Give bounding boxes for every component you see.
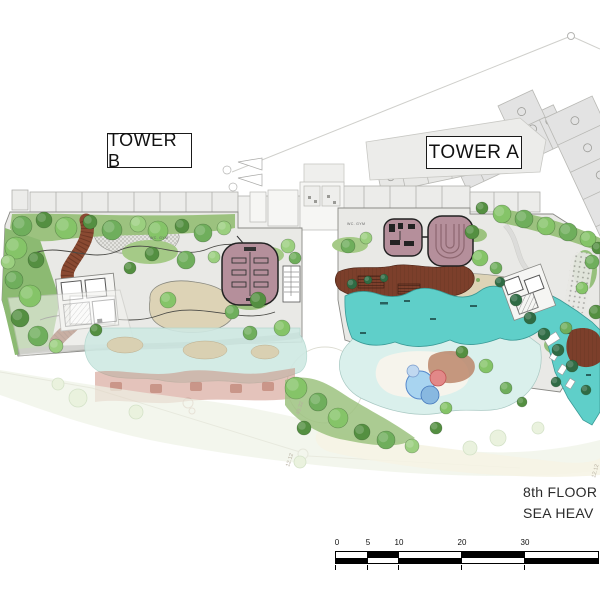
scale-label-10: 10 <box>395 538 404 547</box>
stair-core-tower-b <box>283 266 300 302</box>
scale-label-30: 30 <box>521 538 530 547</box>
plan-title-line2: SEA HEAV <box>523 503 600 524</box>
tower-a-label-box: TOWER A <box>426 136 522 169</box>
ramp-arrow-icon <box>238 158 262 186</box>
outdoor-gym-tower-b <box>222 236 278 305</box>
room-label-gym-a: WC. GYM <box>347 222 365 226</box>
scale-label-0: 0 <box>335 538 339 547</box>
tower-b-label: TOWER B <box>108 130 191 172</box>
scale-label-20: 20 <box>458 538 467 547</box>
tower-a-label: TOWER A <box>429 142 520 164</box>
fitness-pavilion-large <box>428 216 473 266</box>
plan-title: 8th FLOOR SEA HEAV <box>523 482 600 524</box>
floor-plan-canvas: WC. GYM WC. GYM 49.32 12.12 12.12 TOWER … <box>0 0 600 600</box>
room-label-gym-b: WC. GYM <box>150 236 168 240</box>
scale-bar-graphic <box>335 551 599 564</box>
scale-bar: 0 5 10 20 30 <box>335 538 600 574</box>
fitness-pavilion-small <box>384 219 428 256</box>
scale-label-5: 5 <box>366 538 370 547</box>
tower-b-label-box: TOWER B <box>107 133 192 168</box>
plan-title-line1: 8th FLOOR <box>523 482 600 503</box>
site-plan-drawing: WC. GYM WC. GYM 49.32 12.12 12.12 <box>0 0 600 600</box>
